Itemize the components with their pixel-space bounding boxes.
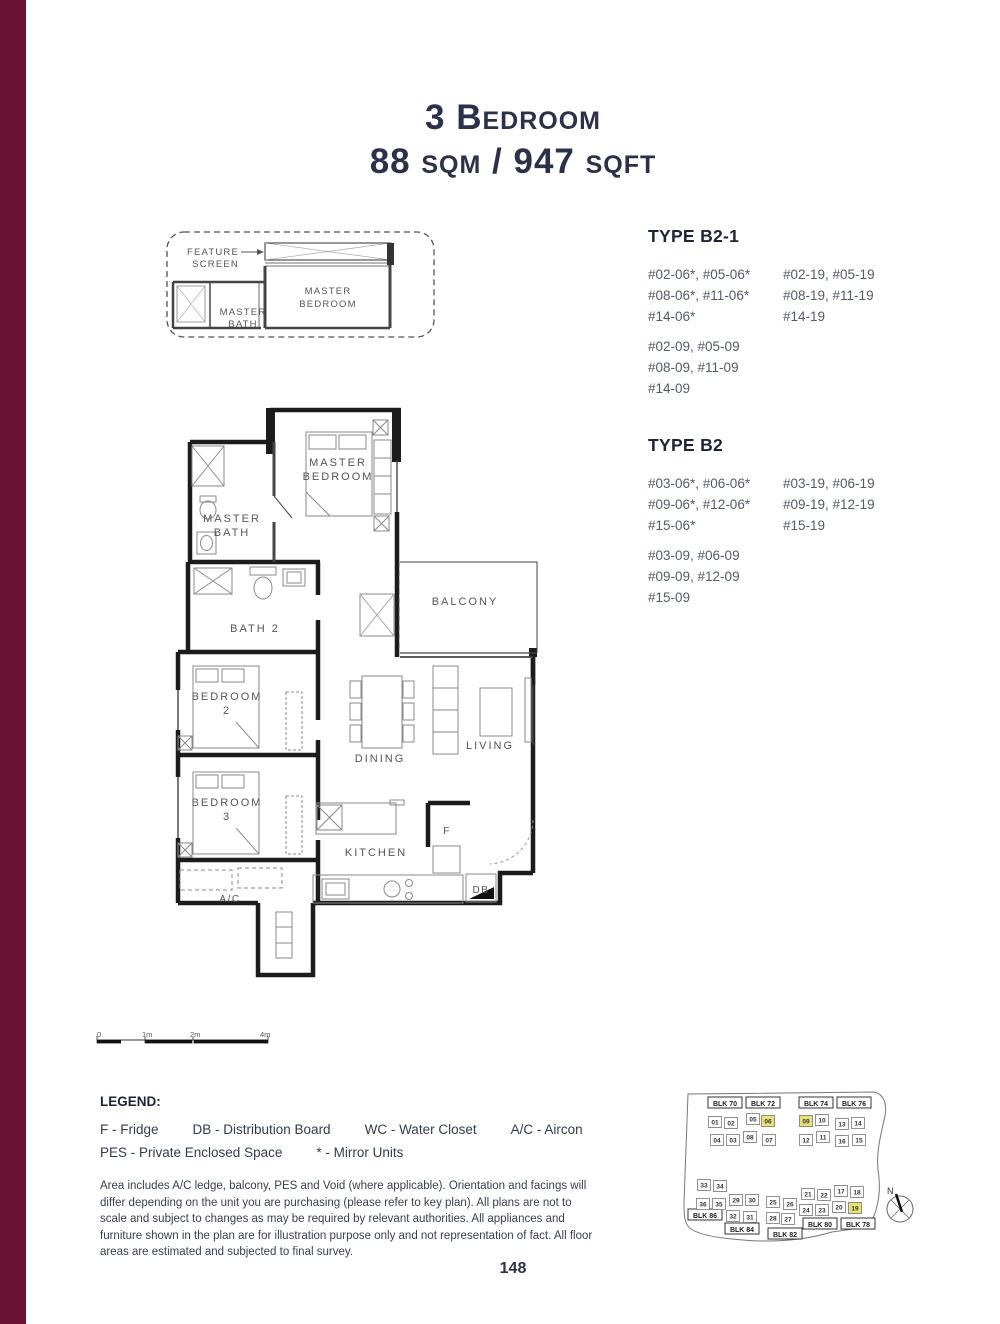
disclaimer-text: Area includes A/C ledge, balcony, PES an… — [100, 1178, 600, 1261]
key-plan-drawing: BLK 70BLK 72BLK 74BLK 76BLK 86BLK 84BLK … — [672, 1082, 934, 1257]
page-number: 148 — [26, 1260, 1000, 1278]
keyplan-unit-label: 19 — [851, 1206, 859, 1213]
inset-master-bath-label: MASTER — [220, 307, 267, 318]
keyplan-unit-label: 25 — [769, 1200, 777, 1207]
unit-list-line: #15-19 — [783, 515, 875, 536]
scale-bar-drawing: 0 1m 2m 4m — [96, 1030, 272, 1048]
keyplan-unit-label: 36 — [699, 1202, 707, 1209]
type-b2-col1-group2: #03-09, #06-09 #09-09, #12-09 #15-09 — [648, 545, 968, 608]
keyplan-unit-label: 16 — [838, 1139, 846, 1146]
inset-master-bedroom-label2: BEDROOM — [299, 299, 357, 310]
keyplan-unit-label: 21 — [804, 1192, 812, 1199]
unit-list-line: #03-09, #06-09 — [648, 545, 968, 566]
ac-label: A/C — [219, 894, 240, 905]
type-b2-block: TYPE B2 #03-06*, #06-06* #09-06*, #12-06… — [648, 435, 968, 608]
keyplan-block-label: BLK 84 — [730, 1227, 754, 1234]
keyplan-unit-label: 23 — [818, 1208, 826, 1215]
keyplan-block-label: BLK 86 — [693, 1213, 717, 1220]
scale-1m-label: 1m — [142, 1030, 152, 1039]
inset-feature-screen-callout — [241, 249, 264, 255]
bedroom3-label2: 3 — [223, 811, 231, 823]
scale-4m-label: 4m — [260, 1030, 270, 1039]
keyplan-block-label: BLK 74 — [804, 1101, 828, 1108]
keyplan-unit-label: 29 — [732, 1198, 740, 1205]
keyplan-unit-label: 22 — [820, 1193, 828, 1200]
inset-detail-plan: FEATURE SCREEN MASTER BEDROOM MASTER BAT… — [165, 230, 437, 340]
floorplan-furniture — [178, 420, 533, 958]
legend-title: LEGEND: — [100, 1094, 660, 1109]
keyplan-block-label: BLK 78 — [846, 1222, 870, 1229]
master-bath-label: MASTER — [203, 513, 261, 525]
compass-n-label: N — [887, 1186, 894, 1196]
type-b2-1-col2: #02-19, #05-19 #08-19, #11-19 #14-19 — [783, 264, 875, 327]
master-bedroom-label: MASTER — [309, 457, 367, 469]
bedroom3-label: BEDROOM — [192, 797, 263, 809]
unit-list-line: #03-19, #06-19 — [783, 473, 875, 494]
bedroom2-label2: 2 — [223, 705, 231, 717]
keyplan-unit-label: 34 — [716, 1184, 724, 1191]
unit-type-title: 3 Bedroom — [26, 96, 1000, 140]
floorplan-partitions — [178, 442, 537, 838]
unit-list-line: #02-19, #05-19 — [783, 264, 875, 285]
arrow-icon — [257, 249, 264, 255]
unit-list-line: #09-19, #12-19 — [783, 494, 875, 515]
inset-feature-screen-label2: SCREEN — [192, 259, 239, 270]
legend-item-wc: WC - Water Closet — [365, 1118, 477, 1141]
keyplan-unit-label: 12 — [802, 1138, 810, 1145]
keyplan-unit-label: 07 — [765, 1138, 773, 1145]
fridge-label: F — [443, 826, 451, 837]
keyplan-block-label: BLK 70 — [713, 1101, 737, 1108]
compass-needle-icon — [896, 1194, 902, 1212]
bath2-label: BATH 2 — [230, 623, 280, 635]
keyplan-unit-label: 04 — [713, 1138, 721, 1145]
keyplan-unit-label: 30 — [748, 1198, 756, 1205]
type-b2-1-heading: TYPE B2-1 — [648, 226, 968, 247]
scale-2m-label: 2m — [190, 1030, 200, 1039]
scale-bar: 0 1m 2m 4m — [96, 1030, 272, 1048]
living-label: LIVING — [466, 740, 514, 752]
inset-plan-drawing: FEATURE SCREEN MASTER BEDROOM MASTER BAT… — [165, 230, 437, 340]
inset-master-bedroom-label: MASTER — [305, 286, 352, 297]
brochure-page: { "page": {"number": "148", "accent_colo… — [0, 0, 1000, 1324]
keyplan-unit-label: 01 — [711, 1120, 719, 1127]
site-key-plan: BLK 70BLK 72BLK 74BLK 76BLK 86BLK 84BLK … — [672, 1082, 934, 1257]
keyplan-unit-label: 33 — [700, 1183, 708, 1190]
master-bedroom-label2: BEDROOM — [303, 471, 374, 483]
legend-item-db: DB - Distribution Board — [193, 1118, 331, 1141]
type-b2-1-col1-group2: #02-09, #05-09 #08-09, #11-09 #14-09 — [648, 336, 968, 399]
keyplan-unit-label: 08 — [746, 1135, 754, 1142]
dining-label: DINING — [355, 753, 406, 765]
keyplan-unit-label: 20 — [835, 1205, 843, 1212]
keyplan-unit-label: 24 — [802, 1208, 810, 1215]
main-floor-plan: MASTER BEDROOM MASTER BATH BATH 2 BALCON… — [170, 400, 570, 990]
keyplan-unit-label: 06 — [764, 1119, 772, 1126]
keyplan-unit-label: 09 — [802, 1119, 810, 1126]
legend-item-ac: A/C - Aircon — [511, 1118, 583, 1141]
scale-0-label: 0 — [97, 1030, 101, 1039]
keyplan-unit-label: 11 — [820, 1135, 827, 1142]
keyplan-unit-label: 14 — [854, 1121, 862, 1128]
keyplan-unit-label: 05 — [749, 1117, 757, 1124]
keyplan-unit-label: 13 — [838, 1122, 846, 1129]
legend-item-pes: PES - Private Enclosed Space — [100, 1141, 282, 1164]
keyplan-unit-label: 15 — [855, 1138, 863, 1145]
bedroom2-label: BEDROOM — [192, 691, 263, 703]
keyplan-block-label: BLK 80 — [808, 1222, 832, 1229]
balcony-label: BALCONY — [432, 596, 499, 608]
type-b2-1-block: TYPE B2-1 #02-06*, #05-06* #08-06*, #11-… — [648, 226, 968, 399]
keyplan-unit-label: 26 — [786, 1202, 794, 1209]
type-b2-heading: TYPE B2 — [648, 435, 968, 456]
keyplan-block-label: BLK 72 — [751, 1101, 775, 1108]
legend: LEGEND: F - Fridge DB - Distribution Boa… — [100, 1094, 660, 1164]
keyplan-block-label: BLK 82 — [773, 1232, 797, 1239]
master-bath-label2: BATH — [214, 527, 251, 539]
keyplan-unit-label: 27 — [784, 1217, 792, 1224]
unit-list-line: #02-09, #05-09 — [648, 336, 968, 357]
inset-feature-screen-label: FEATURE — [187, 247, 239, 258]
legend-item-fridge: F - Fridge — [100, 1118, 159, 1141]
page-content: 3 Bedroom 88 sqm / 947 sqft — [26, 0, 1000, 1324]
legend-item-mirror: * - Mirror Units — [316, 1141, 403, 1164]
wall-pillar — [392, 408, 401, 462]
keyplan-block-label: BLK 76 — [842, 1101, 866, 1108]
keyplan-unit-label: 18 — [853, 1190, 861, 1197]
keyplan-unit-label: 03 — [729, 1138, 737, 1145]
floor-plan-drawing: MASTER BEDROOM MASTER BATH BATH 2 BALCON… — [170, 400, 570, 990]
left-accent-bar — [0, 0, 26, 1324]
type-b2-col2: #03-19, #06-19 #09-19, #12-19 #15-19 — [783, 473, 875, 536]
kitchen-label: KITCHEN — [345, 847, 407, 859]
compass: N — [887, 1186, 913, 1222]
unit-list-line: #15-09 — [648, 587, 968, 608]
keyplan-unit-label: 17 — [837, 1189, 845, 1196]
unit-type-listings: TYPE B2-1 #02-06*, #05-06* #08-06*, #11-… — [648, 226, 968, 644]
page-title: 3 Bedroom 88 sqm / 947 sqft — [26, 96, 1000, 184]
keyplan-unit-label: 35 — [715, 1202, 723, 1209]
unit-list-line: #14-09 — [648, 378, 968, 399]
unit-area-title: 88 sqm / 947 sqft — [26, 140, 1000, 184]
unit-list-line: #14-19 — [783, 306, 875, 327]
unit-list-line: #09-09, #12-09 — [648, 566, 968, 587]
inset-master-bath-label2: BATH — [228, 319, 257, 330]
keyplan-unit-label: 32 — [729, 1214, 737, 1221]
keyplan-unit-label: 02 — [727, 1121, 735, 1128]
keyplan-unit-label: 28 — [769, 1216, 777, 1223]
keyplan-unit-label: 31 — [746, 1215, 754, 1222]
db-label: DB — [473, 885, 490, 896]
keyplan-unit-label: 10 — [818, 1118, 826, 1125]
unit-list-line: #08-09, #11-09 — [648, 357, 968, 378]
unit-list-line: #08-19, #11-19 — [783, 285, 875, 306]
